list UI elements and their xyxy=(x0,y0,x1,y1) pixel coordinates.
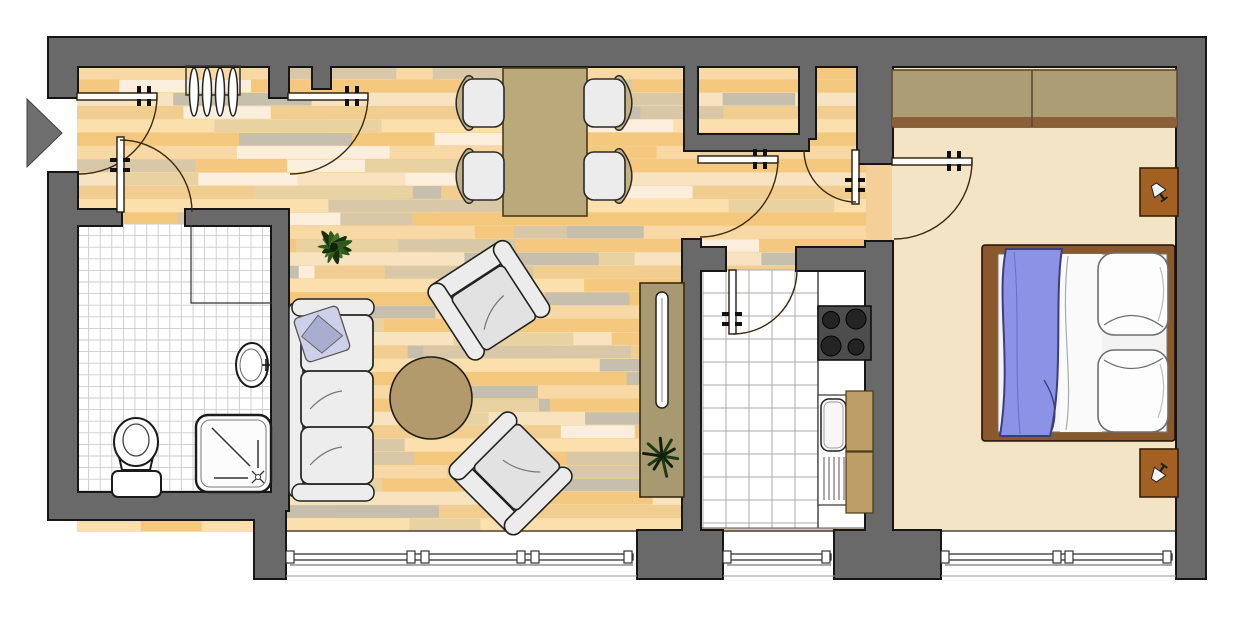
window-tab xyxy=(517,551,525,563)
window-living xyxy=(286,551,637,576)
toilet xyxy=(112,418,161,497)
hanger-icon xyxy=(216,68,225,116)
blanket xyxy=(1000,249,1062,436)
window-tab xyxy=(1065,551,1073,563)
window-tab xyxy=(531,551,539,563)
window-bedroom xyxy=(941,551,1176,576)
sofa-cushion xyxy=(301,427,373,484)
dining-chair xyxy=(461,152,505,200)
stove xyxy=(818,306,871,360)
hanger-icon xyxy=(229,68,238,116)
burner-icon xyxy=(823,312,840,329)
dining-table xyxy=(503,68,587,216)
burner-icon xyxy=(848,339,864,355)
window-tab xyxy=(1053,551,1061,563)
bed-pillow xyxy=(1098,350,1168,432)
window-tab xyxy=(421,551,429,563)
dining-chair xyxy=(461,79,505,127)
floor-plan xyxy=(0,0,1250,622)
sofa-cushion xyxy=(301,371,373,428)
windows xyxy=(286,551,1176,576)
bed-pillow xyxy=(1098,253,1168,335)
entrance xyxy=(27,99,62,167)
floor-plan-canvas xyxy=(0,0,1250,622)
entrance-arrow-icon xyxy=(27,99,62,167)
window-tab xyxy=(822,551,830,563)
round-rug xyxy=(390,357,472,439)
dining-chair xyxy=(584,79,628,127)
wardrobe xyxy=(892,70,1177,127)
window-tab xyxy=(723,551,731,563)
bedroom-doorway-floor xyxy=(866,163,892,242)
tv xyxy=(656,292,668,408)
kitchen-sink xyxy=(818,395,848,505)
window-tab xyxy=(286,551,294,563)
window-tab xyxy=(624,551,632,563)
window-tab xyxy=(1163,551,1171,563)
window-kitchen xyxy=(723,551,835,576)
hanger-icon xyxy=(190,68,199,116)
dining-chair xyxy=(584,152,628,200)
burner-icon xyxy=(846,309,866,329)
window-tab xyxy=(941,551,949,563)
burner-icon xyxy=(821,336,841,356)
kitchen-cabinet xyxy=(846,391,873,513)
hanger-icon xyxy=(203,68,212,116)
shower xyxy=(196,415,271,492)
window-tab xyxy=(407,551,415,563)
